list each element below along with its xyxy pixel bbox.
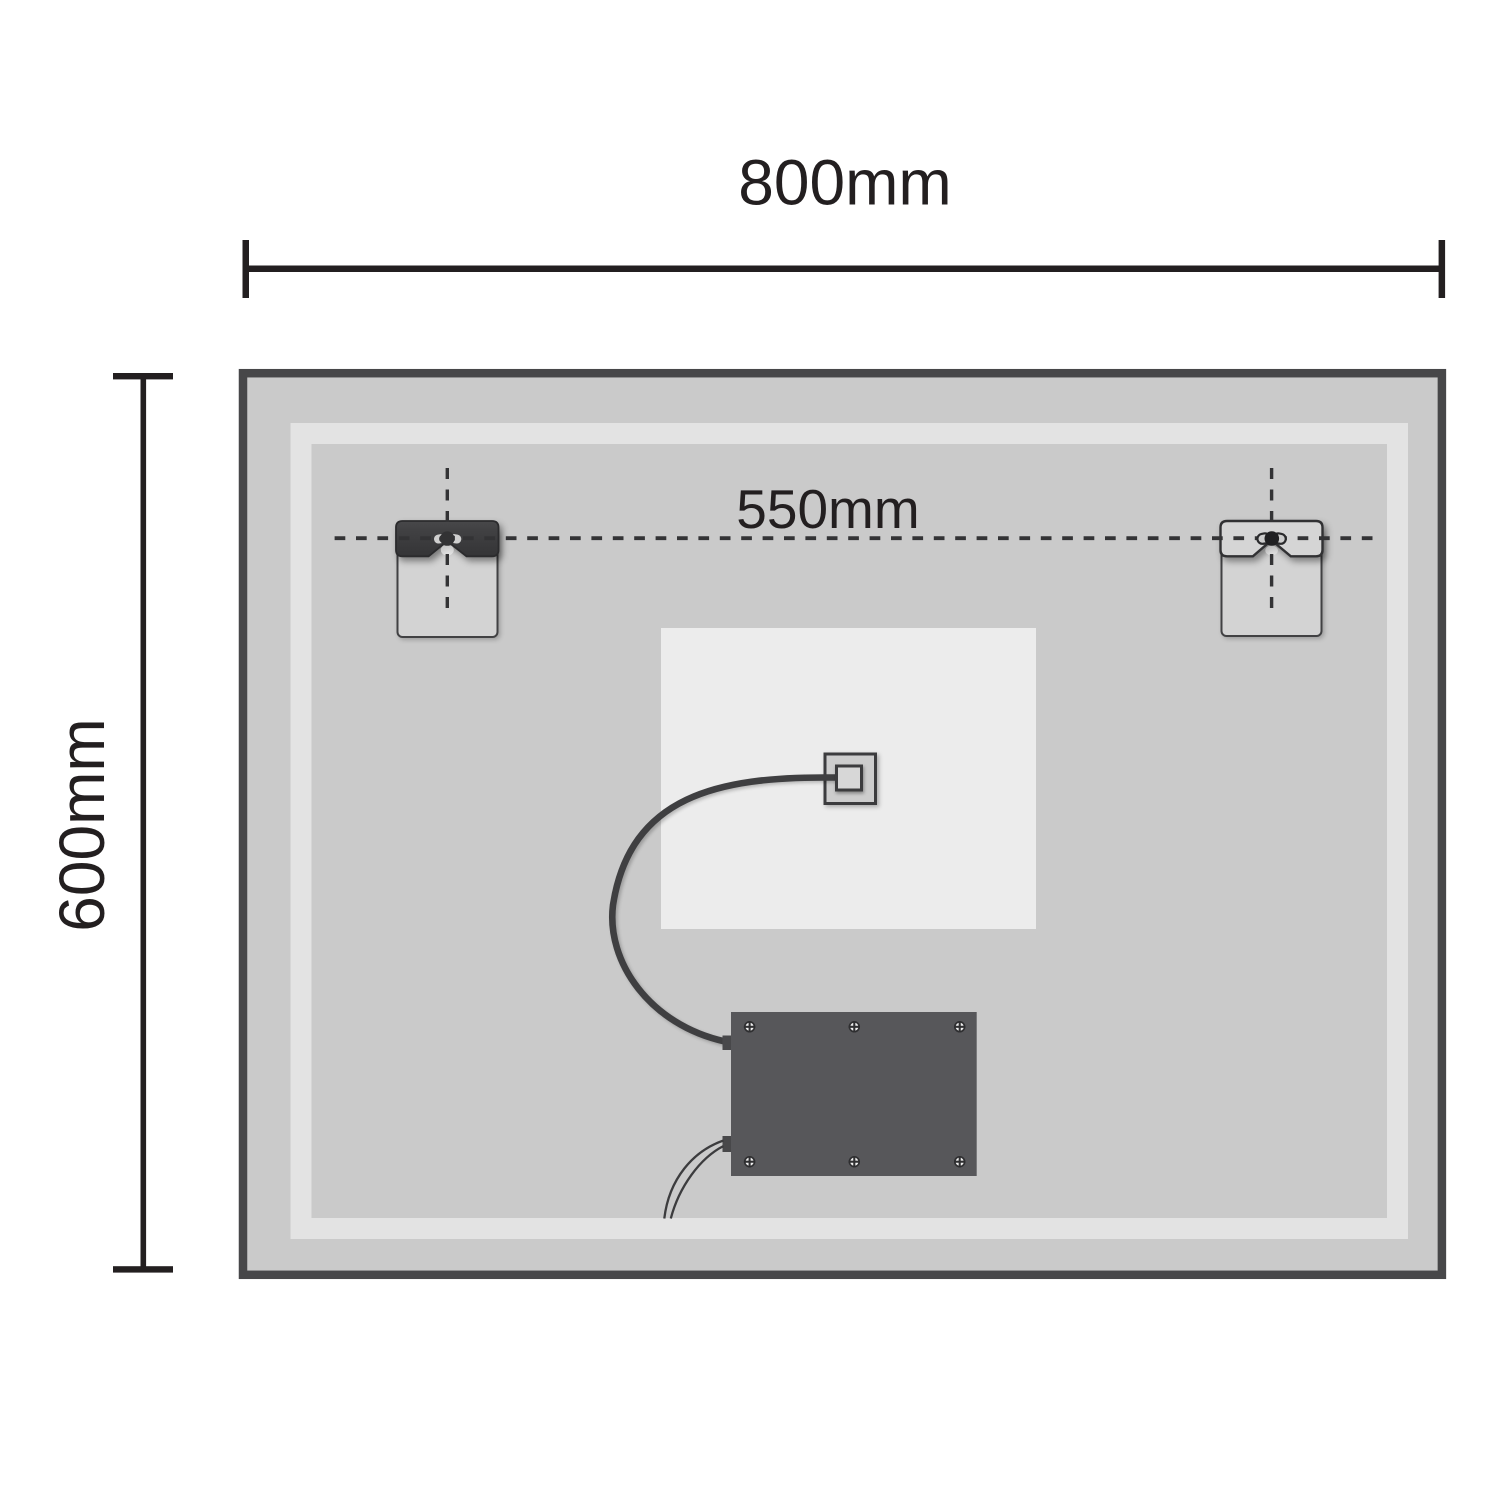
svg-text:800mm: 800mm (738, 147, 951, 219)
svg-text:600mm: 600mm (46, 718, 118, 931)
svg-text:550mm: 550mm (736, 478, 919, 540)
